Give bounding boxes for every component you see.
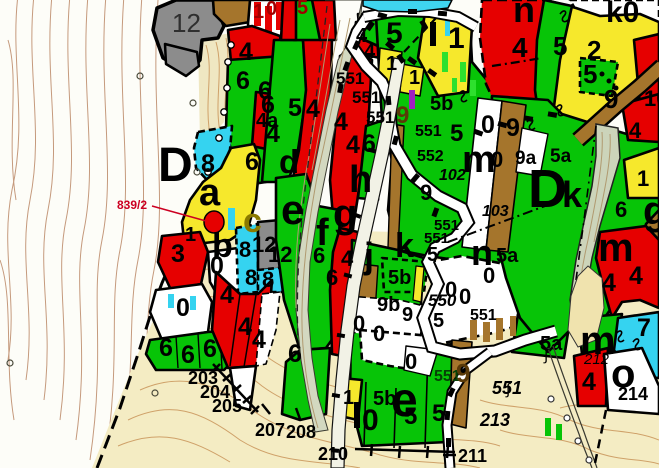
svg-text:103: 103 [482,203,509,220]
svg-text:6: 6 [615,197,627,222]
svg-text:0: 0 [266,0,277,20]
svg-text:1: 1 [448,22,465,55]
svg-text:102: 102 [439,167,466,184]
svg-text:839/2: 839/2 [117,198,147,212]
svg-text:5b: 5b [373,388,396,410]
svg-text:0: 0 [373,321,385,346]
svg-text:551: 551 [336,69,364,88]
svg-text:4: 4 [364,41,376,63]
svg-text:4: 4 [252,326,266,354]
svg-text:6: 6 [245,148,259,176]
svg-text:6: 6 [326,265,338,290]
svg-text:1: 1 [343,387,354,409]
svg-text:12: 12 [172,8,201,38]
svg-text:12: 12 [268,242,292,267]
svg-text:9a: 9a [515,148,537,169]
svg-text:8: 8 [262,267,274,292]
svg-text:4: 4 [238,313,252,341]
svg-text:0: 0 [353,311,365,336]
svg-text:6: 6 [362,130,376,158]
svg-text:10: 10 [644,86,659,111]
svg-text:6: 6 [313,243,325,268]
svg-text:6: 6 [203,335,217,363]
svg-text:k0: k0 [606,0,639,29]
svg-text:207: 207 [255,420,285,440]
svg-text:0: 0 [481,111,495,139]
svg-text:214: 214 [618,384,648,404]
svg-text:g: g [643,189,659,233]
svg-text:5b: 5b [388,267,411,289]
svg-text:4: 4 [629,262,643,290]
svg-text:e: e [281,186,304,233]
svg-text:5b: 5b [430,93,453,115]
svg-text:5: 5 [386,17,403,50]
svg-text:k: k [395,227,414,265]
svg-text:552: 552 [417,148,444,165]
svg-text:9: 9 [456,358,470,388]
svg-text:4: 4 [266,120,280,148]
svg-text:6: 6 [159,334,173,362]
svg-text:211: 211 [458,446,487,466]
svg-text:9: 9 [402,304,413,326]
svg-text:4: 4 [306,95,320,123]
svg-text:5: 5 [297,0,308,19]
svg-text:6: 6 [181,341,195,369]
svg-text:551: 551 [366,108,394,127]
svg-text:4: 4 [239,38,253,66]
svg-text:5: 5 [450,120,463,147]
svg-text:551: 551 [352,88,380,107]
svg-text:j: j [363,235,374,276]
svg-text:5a: 5a [550,146,572,167]
svg-text:6: 6 [288,340,302,368]
svg-text:4: 4 [602,269,616,297]
svg-text:D: D [158,139,193,192]
svg-text:1: 1 [185,224,196,246]
svg-text:4: 4 [346,131,360,159]
svg-text:1: 1 [386,53,397,75]
svg-text:3: 3 [171,240,185,268]
svg-text:5: 5 [553,31,567,61]
svg-text:5: 5 [288,94,302,122]
svg-text:205: 205 [212,396,242,416]
svg-text:550: 550 [428,291,457,310]
svg-text:9: 9 [420,180,432,205]
svg-text:8: 8 [239,237,251,262]
svg-text:0: 0 [483,263,495,288]
svg-text:9: 9 [506,114,520,142]
svg-text:210: 210 [318,444,348,464]
svg-text:8: 8 [201,150,215,178]
svg-text:9: 9 [396,102,409,129]
svg-text:5: 5 [433,310,444,332]
svg-text:7: 7 [637,314,651,342]
svg-text:h: h [349,159,372,201]
svg-text:0: 0 [459,284,471,309]
svg-text:1: 1 [253,1,264,23]
svg-text:4: 4 [629,118,642,143]
svg-text:5: 5 [583,59,597,89]
svg-text:6: 6 [236,67,250,95]
svg-text:212: 212 [583,351,610,368]
svg-text:551: 551 [415,123,442,140]
svg-text:4: 4 [512,32,528,63]
svg-text:0: 0 [176,294,190,322]
svg-text:1: 1 [637,166,649,191]
svg-text:d: d [279,143,299,180]
svg-text:5: 5 [432,400,445,427]
svg-text:9: 9 [604,84,618,114]
svg-text:5a: 5a [496,245,519,267]
svg-text:4: 4 [341,246,354,271]
svg-text:4: 4 [582,368,596,396]
svg-text:0: 0 [210,252,224,280]
svg-text:551: 551 [470,307,497,324]
svg-text:208: 208 [286,422,316,442]
svg-text:5: 5 [404,403,417,430]
svg-text:k: k [562,174,583,215]
svg-text:0: 0 [491,147,503,172]
svg-text:5: 5 [427,244,438,266]
svg-text:4: 4 [220,281,234,309]
svg-text:n: n [513,0,535,30]
svg-text:0: 0 [405,349,417,374]
svg-text:8: 8 [245,265,257,290]
svg-text:a: a [199,172,221,214]
svg-text:1: 1 [409,67,420,89]
svg-text:9b: 9b [377,294,400,316]
svg-text:213: 213 [479,410,510,430]
